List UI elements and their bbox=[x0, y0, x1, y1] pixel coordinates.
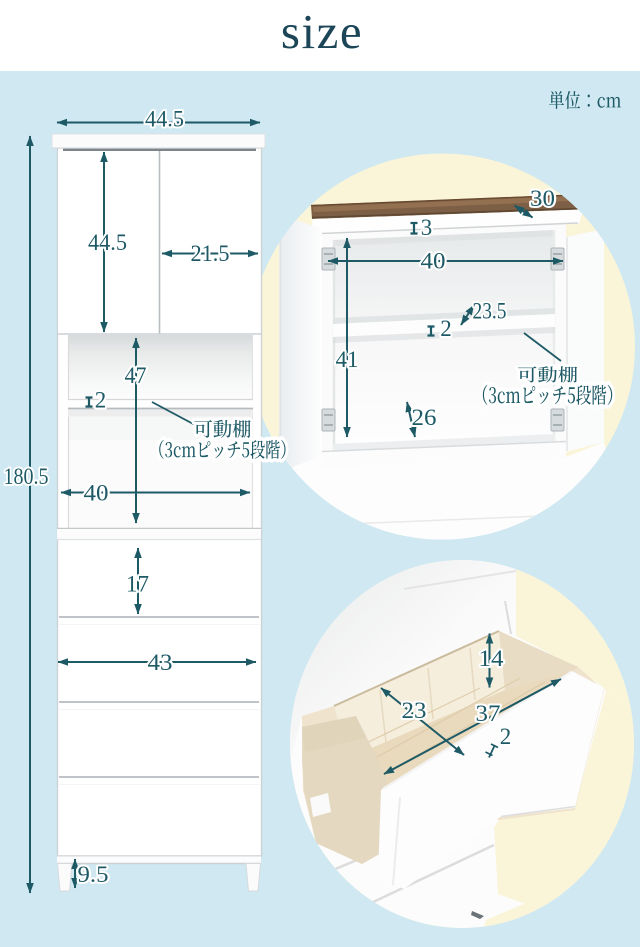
svg-text:40: 40 bbox=[84, 481, 109, 506]
svg-text:9.5: 9.5 bbox=[78, 862, 109, 887]
svg-text:41: 41 bbox=[336, 347, 359, 372]
svg-text:44.5: 44.5 bbox=[88, 230, 127, 255]
svg-text:size: size bbox=[281, 4, 363, 59]
svg-text:14: 14 bbox=[479, 646, 505, 671]
svg-text:44.5: 44.5 bbox=[145, 107, 184, 132]
svg-text:180.5: 180.5 bbox=[4, 464, 49, 489]
svg-text:2: 2 bbox=[95, 388, 107, 413]
svg-text:2: 2 bbox=[500, 724, 512, 749]
svg-text:23.5: 23.5 bbox=[473, 299, 507, 324]
svg-text:26: 26 bbox=[412, 405, 437, 430]
svg-text:2: 2 bbox=[440, 316, 452, 341]
svg-text:3: 3 bbox=[421, 215, 433, 240]
svg-text:40: 40 bbox=[421, 249, 446, 274]
svg-text:37: 37 bbox=[476, 701, 501, 726]
svg-text:47: 47 bbox=[125, 363, 147, 388]
svg-text:43: 43 bbox=[148, 650, 173, 675]
svg-text:21.5: 21.5 bbox=[191, 241, 230, 266]
svg-text:23: 23 bbox=[402, 698, 427, 723]
svg-text:30: 30 bbox=[530, 186, 555, 211]
svg-text:17: 17 bbox=[126, 572, 149, 597]
